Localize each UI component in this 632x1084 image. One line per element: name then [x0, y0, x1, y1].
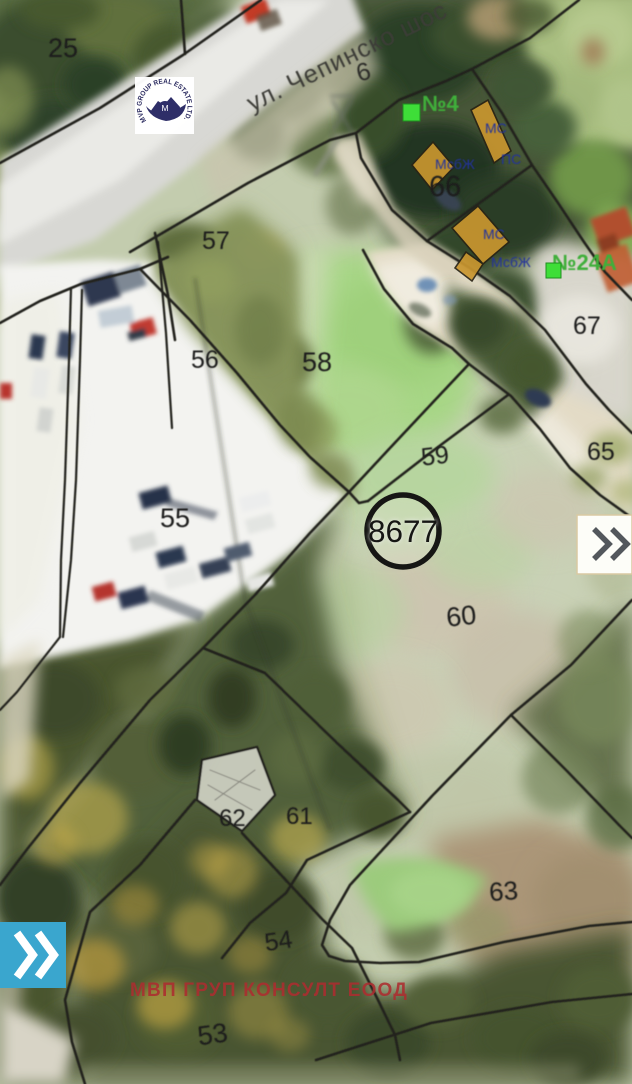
svg-text:56: 56 — [191, 346, 219, 374]
svg-text:МС: МС — [485, 120, 507, 136]
svg-text:M: M — [161, 103, 168, 113]
svg-text:МВП ГРУП КОНСУЛТ ЕООД: МВП ГРУП КОНСУЛТ ЕООД — [130, 980, 408, 1001]
svg-text:63: 63 — [488, 875, 519, 907]
svg-text:62: 62 — [219, 805, 246, 832]
svg-text:№24А: №24А — [552, 250, 617, 275]
svg-text:МсбЖ: МсбЖ — [491, 254, 531, 270]
svg-text:67: 67 — [573, 312, 601, 340]
svg-text:65: 65 — [587, 438, 615, 466]
svg-text:57: 57 — [202, 227, 230, 255]
svg-text:58: 58 — [302, 347, 332, 377]
svg-text:59: 59 — [420, 441, 451, 472]
svg-text:8677: 8677 — [368, 513, 438, 549]
svg-text:61: 61 — [286, 803, 313, 830]
svg-text:МС: МС — [483, 226, 505, 242]
svg-text:54: 54 — [263, 925, 295, 957]
svg-text:25: 25 — [48, 33, 78, 63]
svg-text:53: 53 — [196, 1017, 230, 1051]
svg-text:МсбЖ: МсбЖ — [435, 156, 475, 172]
svg-text:60: 60 — [445, 600, 478, 633]
svg-text:55: 55 — [160, 503, 190, 533]
svg-text:66: 66 — [429, 171, 461, 203]
svg-text:ПС: ПС — [501, 151, 521, 167]
svg-text:№4: №4 — [422, 91, 460, 116]
